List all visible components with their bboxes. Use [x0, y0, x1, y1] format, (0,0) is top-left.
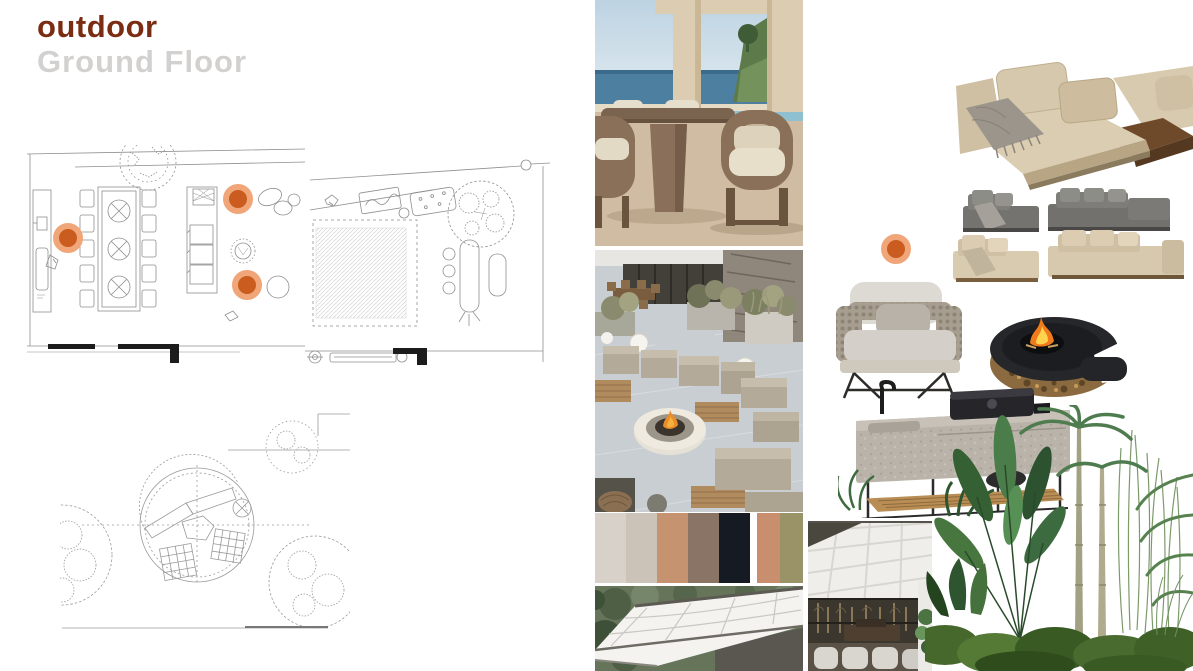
palette-swatch — [780, 513, 803, 583]
page-subtitle: Ground Floor — [37, 45, 247, 80]
photo-outdoor-dining-graphic — [595, 0, 803, 246]
photo-pergola-canopy — [595, 586, 803, 671]
palette-swatch — [688, 513, 719, 583]
photo-outdoor-dining-ocean-view — [595, 0, 803, 246]
color-palette-accent — [757, 513, 803, 583]
location-marker — [881, 234, 911, 264]
photo-terrace-fire-pit — [595, 250, 803, 512]
palette-swatch — [757, 513, 780, 583]
floor-plan-lawn — [305, 150, 550, 368]
render-modular-sofas — [948, 48, 1193, 288]
floor-plan-round-lounge — [60, 400, 350, 648]
palette-swatch — [657, 513, 688, 583]
render-plants-graphic — [925, 405, 1193, 671]
page-title: outdoor — [37, 10, 247, 45]
render-sofas-graphic — [948, 48, 1193, 288]
moodboard-slide: outdoor Ground Floor — [0, 0, 1193, 671]
palette-swatch — [719, 513, 750, 583]
render-tropical-plants — [925, 405, 1193, 671]
palette-swatch — [626, 513, 657, 583]
palette-swatch — [595, 513, 626, 583]
color-palette-main — [595, 513, 750, 583]
floor-plan-round-lounge-drawing — [60, 400, 350, 648]
photo-pergola-graphic — [595, 586, 803, 671]
photo-canopy-interior — [808, 521, 932, 671]
floor-plan-dining-terrace-drawing — [20, 145, 305, 370]
floor-plan-lawn-drawing — [305, 150, 550, 368]
header: outdoor Ground Floor — [37, 10, 247, 79]
photo-canopy-interior-graphic — [808, 521, 932, 671]
floor-plan-dining-terrace — [20, 145, 305, 370]
photo-terrace-graphic — [595, 250, 803, 512]
